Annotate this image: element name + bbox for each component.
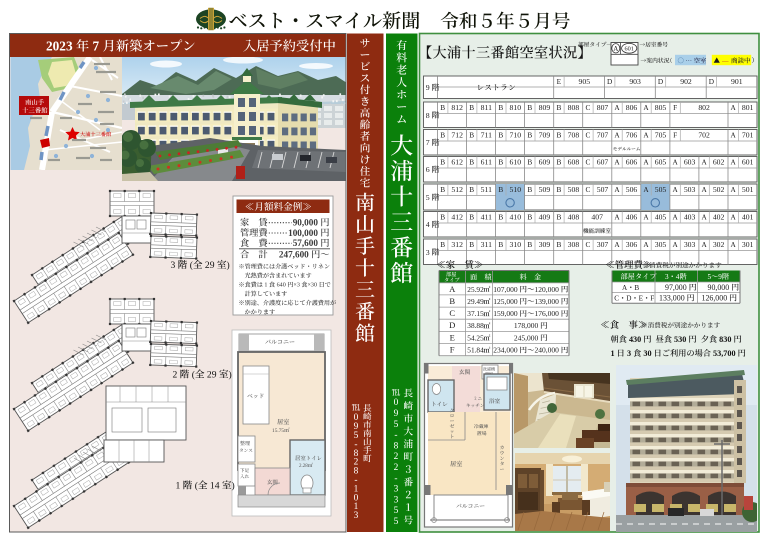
svg-text:608: 608: [568, 158, 580, 167]
svg-text:430: 430: [627, 335, 643, 344]
svg-text:B: B: [449, 296, 455, 306]
svg-text:A: A: [672, 240, 678, 249]
svg-text:E: E: [557, 77, 562, 86]
svg-text:A: A: [672, 213, 678, 222]
svg-text:612: 612: [451, 158, 463, 167]
svg-text:57,600: 57,600: [293, 238, 321, 248]
svg-text:401: 401: [742, 213, 754, 222]
svg-text:806: 806: [626, 103, 638, 112]
svg-text:512: 512: [451, 185, 463, 194]
svg-text:A: A: [701, 240, 707, 249]
svg-text:15.75: 15.75: [272, 428, 284, 434]
svg-text:A: A: [672, 185, 678, 194]
svg-text:A: A: [731, 213, 737, 222]
svg-text:B: B: [469, 131, 474, 140]
svg-text:A: A: [672, 158, 678, 167]
svg-text:3: 3: [426, 248, 432, 257]
svg-text:A: A: [614, 240, 620, 249]
svg-text:A: A: [614, 103, 620, 112]
svg-text:A: A: [614, 131, 620, 140]
svg-text:308: 308: [568, 240, 580, 249]
svg-text:B: B: [556, 103, 561, 112]
svg-text:B: B: [527, 131, 532, 140]
svg-text:3: 3: [665, 273, 669, 281]
svg-text:506: 506: [626, 185, 638, 194]
svg-text:705: 705: [655, 131, 667, 140]
svg-text:A: A: [701, 158, 707, 167]
svg-text:607: 607: [597, 158, 609, 167]
svg-text:A: A: [643, 131, 649, 140]
svg-text:640: 640: [275, 283, 287, 289]
svg-text:606: 606: [626, 158, 638, 167]
svg-text:1: 1: [611, 349, 617, 358]
svg-text:B: B: [440, 158, 445, 167]
svg-text:107,000: 107,000: [493, 285, 519, 294]
svg-text:-: -: [394, 431, 397, 441]
svg-text:D: D: [607, 77, 612, 86]
svg-text:2: 2: [173, 370, 180, 381]
svg-text:A: A: [731, 158, 737, 167]
svg-text:808: 808: [568, 103, 580, 112]
svg-text:7: 7: [426, 138, 432, 147]
svg-text:410: 410: [510, 213, 522, 222]
svg-text:830: 830: [717, 335, 733, 344]
svg-text:3: 3: [171, 260, 178, 271]
svg-text:247,600: 247,600: [279, 250, 311, 260]
svg-text:709: 709: [539, 131, 551, 140]
svg-text:503: 503: [684, 185, 696, 194]
svg-text:1: 1: [176, 481, 183, 492]
svg-text:3: 3: [394, 485, 399, 495]
svg-text:B: B: [498, 131, 503, 140]
svg-text:5: 5: [426, 193, 432, 202]
svg-text:2.28: 2.28: [299, 464, 308, 469]
svg-text:B: B: [440, 213, 445, 222]
svg-text:2: 2: [394, 452, 399, 462]
svg-text:234,000: 234,000: [493, 346, 519, 355]
svg-text:90,000: 90,000: [708, 283, 732, 292]
svg-text:D: D: [709, 77, 714, 86]
svg-text:B: B: [469, 240, 474, 249]
svg-text:905: 905: [579, 77, 591, 86]
svg-text:602: 602: [713, 158, 725, 167]
svg-text:702: 702: [698, 131, 710, 140]
svg-text:B: B: [469, 103, 474, 112]
svg-text:3: 3: [625, 349, 633, 358]
svg-text:707: 707: [597, 131, 609, 140]
svg-text:): ): [227, 260, 230, 271]
svg-text:F: F: [673, 131, 677, 140]
svg-text:9: 9: [718, 273, 722, 281]
svg-text:307: 307: [597, 240, 609, 249]
svg-text:B: B: [498, 240, 503, 249]
svg-text:×30: ×30: [308, 283, 319, 289]
svg-text:38.88: 38.88: [467, 321, 484, 330]
svg-text:710: 710: [510, 131, 522, 140]
svg-text:801: 801: [742, 103, 754, 112]
svg-text:510: 510: [510, 185, 522, 194]
svg-text:E: E: [450, 332, 455, 342]
svg-text:402: 402: [713, 213, 725, 222]
svg-text:505: 505: [655, 185, 667, 194]
svg-text:303: 303: [684, 240, 696, 249]
svg-text:(: (: [187, 260, 193, 271]
svg-text:125,000: 125,000: [493, 297, 519, 306]
svg-text:A: A: [731, 103, 737, 112]
svg-text:610: 610: [510, 158, 522, 167]
svg-text:B: B: [498, 158, 503, 167]
svg-text:97,000: 97,000: [665, 283, 689, 292]
svg-text:409: 409: [539, 213, 551, 222]
svg-text:B: B: [527, 158, 532, 167]
svg-text:511: 511: [481, 185, 492, 194]
svg-text:530: 530: [672, 335, 688, 344]
svg-text:609: 609: [539, 158, 551, 167]
svg-text:507: 507: [597, 185, 609, 194]
svg-text:903: 903: [629, 77, 641, 86]
svg-text:C: C: [449, 308, 455, 318]
svg-text:A: A: [613, 45, 618, 53]
svg-text:B: B: [469, 158, 474, 167]
svg-text:139,000: 139,000: [535, 297, 561, 306]
svg-text:601: 601: [624, 46, 633, 53]
svg-text:309: 309: [539, 240, 551, 249]
svg-text:F: F: [450, 345, 455, 355]
svg-text:A: A: [731, 240, 737, 249]
svg-text:6: 6: [426, 165, 432, 174]
svg-text:412: 412: [451, 213, 463, 222]
svg-text:A: A: [614, 185, 620, 194]
svg-text:407: 407: [591, 213, 603, 222]
svg-text:A: A: [643, 240, 649, 249]
svg-text:133,000: 133,000: [659, 294, 687, 303]
svg-text:5: 5: [394, 420, 399, 430]
svg-text:406: 406: [626, 213, 638, 222]
svg-text:5: 5: [394, 506, 399, 516]
svg-text:711: 711: [481, 131, 492, 140]
svg-text:C: C: [585, 240, 590, 249]
svg-text:29: 29: [203, 260, 217, 271]
svg-text:B: B: [527, 103, 532, 112]
svg-text:B: B: [556, 185, 561, 194]
svg-text:30: 30: [641, 349, 653, 358]
svg-text:812: 812: [451, 103, 463, 112]
svg-text:159,000: 159,000: [493, 309, 519, 318]
svg-text:29: 29: [205, 370, 219, 381]
svg-text:B: B: [527, 240, 532, 249]
svg-text:A: A: [622, 284, 628, 292]
svg-text:403: 403: [684, 213, 696, 222]
svg-text:708: 708: [568, 131, 580, 140]
svg-text:501: 501: [742, 185, 754, 194]
svg-text:A: A: [643, 103, 649, 112]
svg-text:311: 311: [481, 240, 492, 249]
svg-text:F: F: [650, 295, 654, 303]
svg-text:712: 712: [451, 131, 463, 140]
svg-text:3: 3: [354, 511, 359, 521]
svg-text:508: 508: [568, 185, 580, 194]
svg-text:A: A: [731, 185, 737, 194]
svg-text:B: B: [498, 185, 503, 194]
svg-text:29.49: 29.49: [467, 297, 484, 306]
svg-text:54.25: 54.25: [467, 333, 484, 342]
svg-text:53,700: 53,700: [711, 349, 738, 358]
svg-text:8: 8: [394, 441, 399, 451]
svg-text:B: B: [469, 185, 474, 194]
svg-text:90,000: 90,000: [293, 218, 321, 228]
svg-text:E: E: [639, 295, 644, 303]
svg-text:8: 8: [426, 111, 432, 120]
svg-text:611: 611: [481, 158, 492, 167]
svg-text:240,000: 240,000: [535, 346, 561, 355]
svg-text:B: B: [498, 103, 503, 112]
svg-text:7: 7: [89, 39, 102, 54]
svg-text:178,000: 178,000: [514, 321, 540, 330]
svg-text:502: 502: [713, 185, 725, 194]
svg-text:B: B: [469, 213, 474, 222]
svg-text:A: A: [643, 213, 649, 222]
svg-text:4: 4: [426, 220, 432, 229]
svg-text:D: D: [658, 77, 663, 86]
svg-text:D: D: [626, 295, 631, 303]
svg-text:): ): [229, 370, 232, 381]
svg-text:): ): [232, 481, 235, 492]
svg-text:811: 811: [481, 103, 492, 112]
svg-text:A: A: [701, 185, 707, 194]
svg-text:810: 810: [510, 103, 522, 112]
svg-text:902: 902: [680, 77, 692, 86]
svg-text:603: 603: [684, 158, 696, 167]
svg-text:605: 605: [655, 158, 667, 167]
svg-text:2: 2: [394, 463, 399, 473]
svg-text:B: B: [440, 240, 445, 249]
svg-text:5: 5: [708, 273, 712, 281]
svg-text:9: 9: [426, 83, 432, 92]
svg-text:0: 0: [394, 398, 399, 408]
svg-text:(: (: [192, 481, 198, 492]
svg-text:F: F: [673, 103, 677, 112]
svg-text:411: 411: [481, 213, 492, 222]
svg-text:805: 805: [655, 103, 667, 112]
svg-text:802: 802: [698, 103, 710, 112]
svg-text:B: B: [634, 284, 639, 292]
svg-text:245,000: 245,000: [514, 333, 540, 342]
svg-text:C: C: [614, 295, 619, 303]
svg-text:509: 509: [539, 185, 551, 194]
svg-text:B: B: [498, 213, 503, 222]
svg-text:C: C: [585, 158, 590, 167]
svg-text:176,000: 176,000: [535, 309, 561, 318]
svg-text:9: 9: [394, 409, 399, 419]
svg-text:B: B: [556, 213, 561, 222]
svg-text:2023: 2023: [46, 39, 76, 54]
svg-text:D: D: [449, 320, 455, 330]
svg-text:706: 706: [626, 131, 638, 140]
svg-text:25.92: 25.92: [467, 285, 484, 294]
svg-text:405: 405: [655, 213, 667, 222]
svg-text:1: 1: [263, 283, 269, 289]
svg-text:306: 306: [626, 240, 638, 249]
svg-text:C: C: [585, 185, 590, 194]
svg-text:A: A: [614, 158, 620, 167]
svg-text:4: 4: [676, 273, 680, 281]
svg-text:51.84: 51.84: [467, 346, 484, 355]
svg-text:302: 302: [713, 240, 725, 249]
svg-text:A: A: [731, 131, 737, 140]
svg-text:A: A: [614, 213, 620, 222]
svg-text:B: B: [440, 185, 445, 194]
svg-text:310: 310: [510, 240, 522, 249]
svg-text:301: 301: [742, 240, 754, 249]
svg-text:126,000: 126,000: [702, 294, 730, 303]
svg-text:B: B: [440, 103, 445, 112]
svg-text:100,000: 100,000: [288, 228, 320, 238]
svg-text:809: 809: [539, 103, 551, 112]
svg-text:—: —: [721, 58, 729, 65]
svg-text:5: 5: [394, 517, 399, 527]
svg-text:C: C: [585, 131, 590, 140]
svg-text:B: B: [556, 240, 561, 249]
svg-text:305: 305: [655, 240, 667, 249]
svg-text:37.15: 37.15: [467, 309, 484, 318]
svg-text:B: B: [556, 158, 561, 167]
svg-text:×3: ×3: [293, 283, 301, 289]
svg-text:312: 312: [451, 240, 463, 249]
svg-text:B: B: [527, 213, 532, 222]
svg-text:C: C: [585, 103, 590, 112]
svg-text:A: A: [643, 158, 649, 167]
svg-text:A: A: [449, 284, 456, 294]
svg-text:3: 3: [394, 495, 399, 505]
svg-text:408: 408: [568, 213, 580, 222]
svg-text:807: 807: [597, 103, 609, 112]
svg-text:(: (: [189, 370, 195, 381]
svg-text:-: -: [394, 474, 397, 484]
svg-text:B: B: [440, 131, 445, 140]
svg-text:A: A: [643, 185, 649, 194]
svg-text:601: 601: [742, 158, 754, 167]
svg-text:901: 901: [731, 77, 743, 86]
svg-text:120,000: 120,000: [535, 285, 561, 294]
svg-text:701: 701: [742, 131, 754, 140]
svg-text:A: A: [701, 213, 707, 222]
svg-text:14: 14: [208, 481, 222, 492]
svg-text:B: B: [527, 185, 532, 194]
svg-text:B: B: [556, 131, 561, 140]
